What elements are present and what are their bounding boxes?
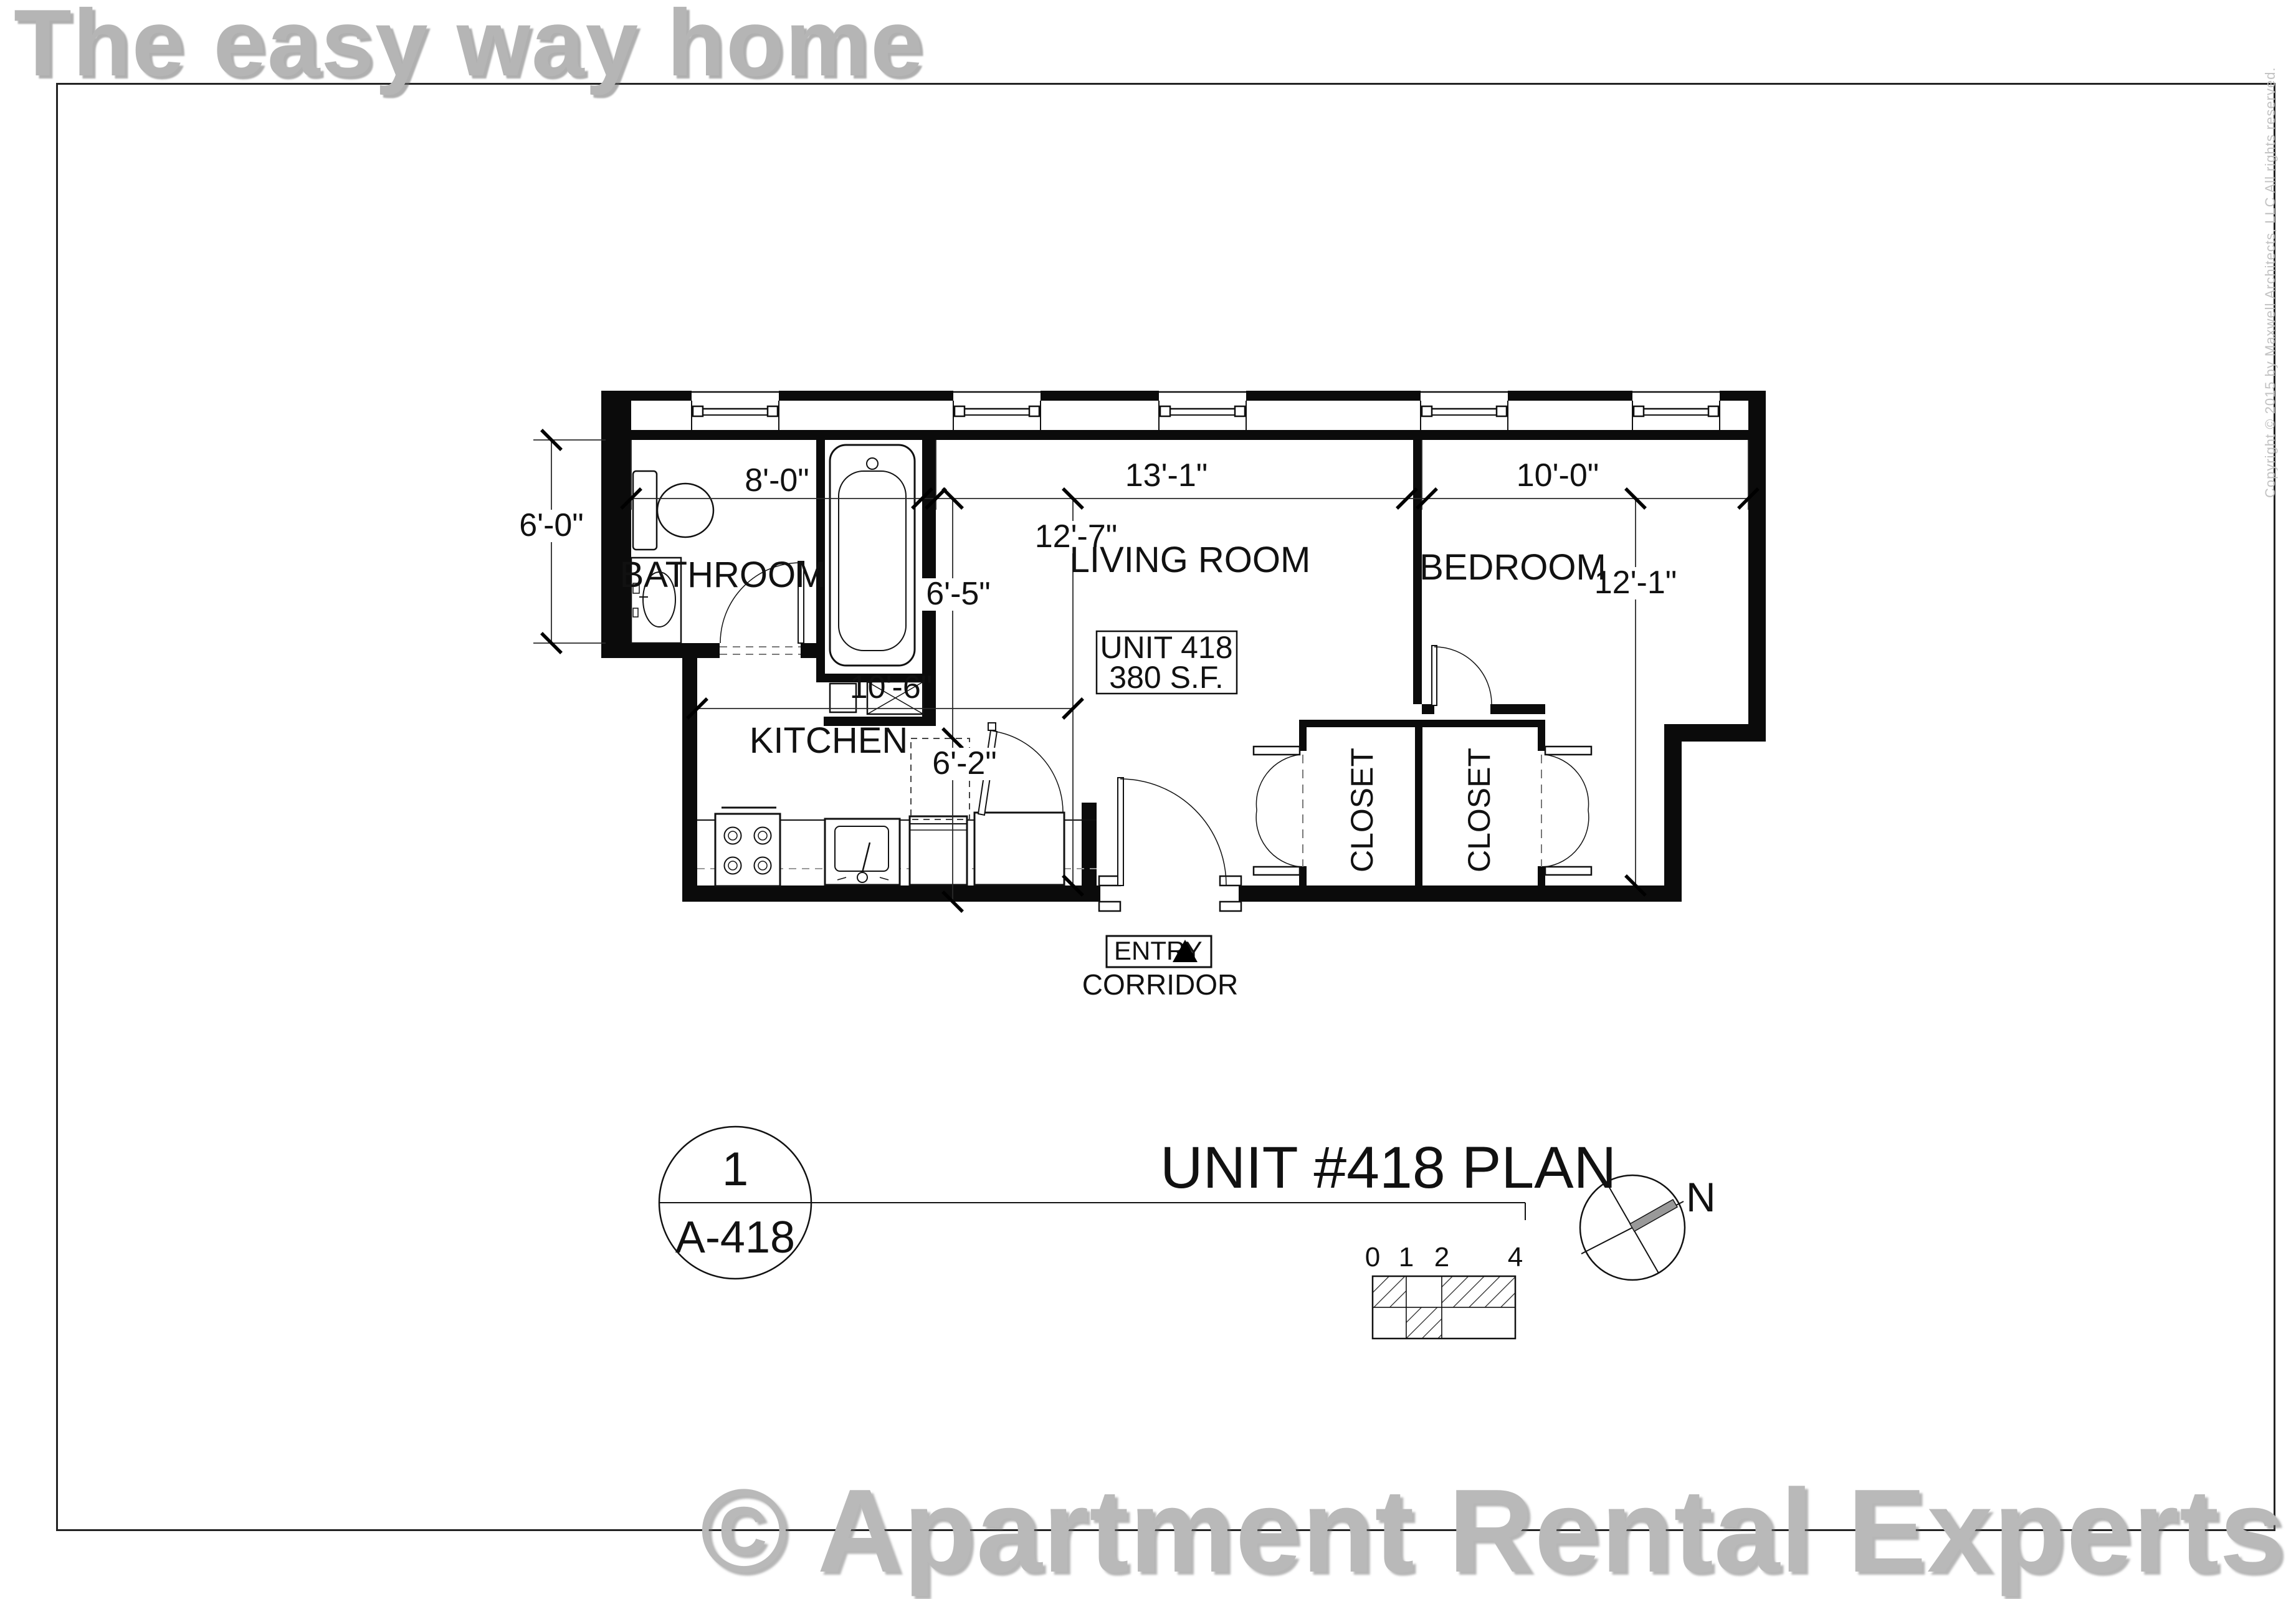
room-label-bathroom: BATHROOM	[620, 555, 826, 595]
bathtub-icon	[830, 445, 915, 666]
unit-area-label: 380 S.F.	[1109, 660, 1223, 695]
scale-tick-4: 4	[1508, 1242, 1523, 1272]
dim-6-2: 6'-2"	[932, 745, 997, 781]
room-label-closet-left: CLOSET	[1345, 748, 1379, 872]
room-label-closet-right: CLOSET	[1462, 748, 1497, 872]
room-label-kitchen: KITCHEN	[750, 720, 908, 761]
window-bay-4	[1421, 401, 1508, 430]
unit-info-box: UNIT 418 380 S.F.	[1097, 630, 1237, 695]
plan-title: UNIT #418 PLAN	[1160, 1135, 1616, 1201]
entry-callout: ENTRY CORRIDOR	[1082, 936, 1238, 1001]
window-bay-5	[1632, 401, 1720, 430]
corridor-label: CORRIDOR	[1082, 968, 1238, 1001]
window-bay-1	[692, 401, 779, 430]
north-label: N	[1686, 1174, 1716, 1220]
closet-bifold-doors-right	[1541, 747, 1591, 875]
room-label-living-room: LIVING ROOM	[1070, 540, 1311, 580]
dim-12-1: 12'-1"	[1594, 565, 1677, 601]
closet-bifold-doors-left	[1254, 747, 1303, 875]
entry-door	[1099, 778, 1241, 911]
room-label-bedroom: BEDROOM	[1419, 547, 1606, 588]
kitchen-sink-icon	[825, 819, 900, 885]
window-bay-2	[953, 401, 1041, 430]
dim-10-0: 10'-0"	[1517, 457, 1599, 494]
windows	[692, 401, 1720, 430]
dishwasher-icon	[910, 816, 967, 885]
stove-icon	[715, 808, 780, 886]
bedroom-door	[1432, 646, 1492, 705]
window-bay-3	[1159, 401, 1246, 430]
title-block: 1 A-418 UNIT #418 PLAN 0 1 2 4 N	[659, 1127, 1716, 1339]
dim-13-1: 13'-1"	[1125, 457, 1208, 494]
sheet-number: A-418	[675, 1213, 795, 1262]
detail-number: 1	[722, 1143, 748, 1196]
dim-10-6: 10'-6"	[850, 669, 932, 705]
scale-tick-2: 2	[1434, 1242, 1449, 1272]
scale-tick-0: 0	[1365, 1242, 1380, 1272]
dim-6-0: 6'-0"	[519, 507, 584, 543]
floor-plan-page: { "watermarks": { "top": "The easy way h…	[0, 0, 2296, 1589]
scale-bar: 0 1 2 4	[1365, 1242, 1523, 1339]
floor-plan-drawing: 8'-0" 6'-0" 6'-5" 13'-1" 12'-7" 10'-0" 1…	[0, 0, 2296, 1589]
dim-6-5: 6'-5"	[926, 576, 991, 612]
toilet-icon	[633, 471, 713, 550]
dim-8-0: 8'-0"	[745, 462, 809, 499]
scale-tick-1: 1	[1399, 1242, 1414, 1272]
